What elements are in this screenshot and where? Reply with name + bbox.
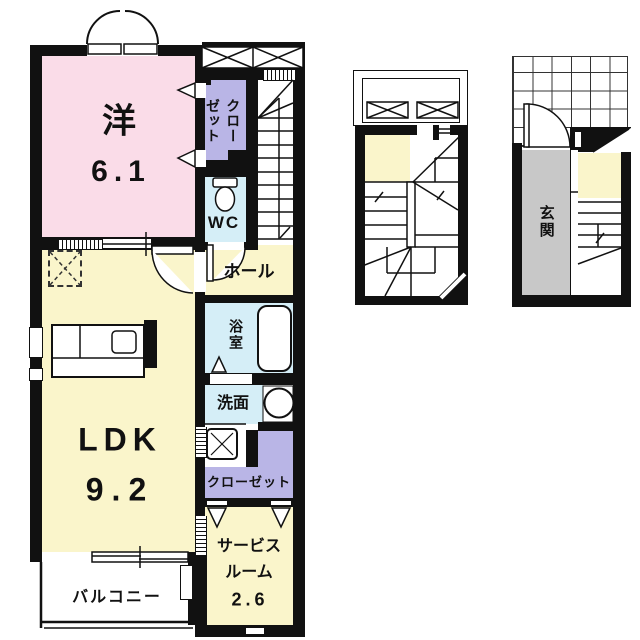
wc-door-gap bbox=[208, 242, 244, 250]
closet-opening-2 bbox=[194, 150, 206, 167]
service-bottom-vent bbox=[245, 627, 265, 635]
refrigerator-space bbox=[48, 250, 82, 287]
ldk-label: LDK bbox=[78, 422, 162, 459]
wall-left bbox=[30, 45, 42, 562]
genkan-wall-bottom bbox=[512, 295, 631, 307]
stair-void-icon bbox=[202, 47, 303, 68]
wall-right bbox=[293, 45, 305, 637]
stairplan-door-post bbox=[433, 125, 439, 140]
sliding-rail-western bbox=[58, 239, 103, 250]
bifold-leaf-1 bbox=[206, 500, 228, 506]
entry-door-gap bbox=[87, 45, 158, 56]
window-left-1 bbox=[29, 327, 43, 358]
stair-window bbox=[263, 69, 295, 81]
wall-top-thin bbox=[202, 42, 305, 47]
balcony-service-box bbox=[180, 565, 193, 600]
stairplan-landing bbox=[365, 135, 410, 182]
sliding-door-washroom bbox=[195, 427, 207, 458]
kitchen-bar-bottom bbox=[95, 357, 144, 367]
genkan-step-strip bbox=[570, 150, 578, 295]
closet-opening-1 bbox=[194, 83, 206, 98]
genkan-latch-notch bbox=[575, 132, 581, 147]
genkan-landing bbox=[578, 153, 621, 198]
genkan-wall-right bbox=[621, 127, 631, 307]
bath-door-gap bbox=[210, 374, 252, 384]
main-stairs-icon bbox=[258, 80, 293, 239]
bath-label: 浴室 bbox=[228, 319, 244, 351]
service-room-label-1: サービス bbox=[217, 538, 281, 556]
window-western-ldk bbox=[103, 239, 151, 248]
hall-label: ホール bbox=[224, 262, 275, 282]
genkan-wall-left bbox=[512, 143, 522, 307]
landing-upper-inner bbox=[362, 78, 460, 123]
wall-closet2-chunk bbox=[246, 430, 258, 467]
sink-icon bbox=[263, 386, 294, 422]
floor-plan: 洋 6.1 クロー ゼット WC ホール 浴室 洗面 クローゼット LDK 9.… bbox=[0, 0, 640, 640]
kitchen-bar-right bbox=[144, 320, 157, 368]
sliding-door-service bbox=[195, 516, 207, 556]
wall-sink-bottom bbox=[258, 422, 305, 431]
closet-upper-label: クロー ゼット bbox=[203, 99, 244, 144]
service-room-label-2: ルーム bbox=[225, 564, 273, 582]
bath-room bbox=[205, 303, 293, 373]
closet-lower-room-a bbox=[258, 430, 293, 467]
ldk-door-gap bbox=[194, 252, 206, 292]
window-left-2 bbox=[29, 368, 43, 381]
laundry-space-icon bbox=[207, 429, 237, 459]
ldk-area: 9.2 bbox=[86, 472, 154, 509]
bifold-leaf-2 bbox=[270, 500, 292, 506]
wc-label: WC bbox=[208, 213, 240, 233]
western-room bbox=[42, 56, 195, 237]
balcony-label: バルコニー bbox=[72, 589, 162, 607]
genkan-label: 玄関 bbox=[537, 205, 554, 239]
service-room-area: 2.6 bbox=[231, 590, 268, 611]
western-room-area: 6.1 bbox=[91, 155, 151, 190]
closet-lower-label: クローゼット bbox=[207, 476, 291, 491]
western-room-label: 洋 bbox=[102, 102, 136, 141]
wall-closet-notch bbox=[228, 150, 246, 161]
washroom-label: 洗面 bbox=[217, 395, 249, 413]
wall-hall-bottom bbox=[195, 295, 305, 303]
